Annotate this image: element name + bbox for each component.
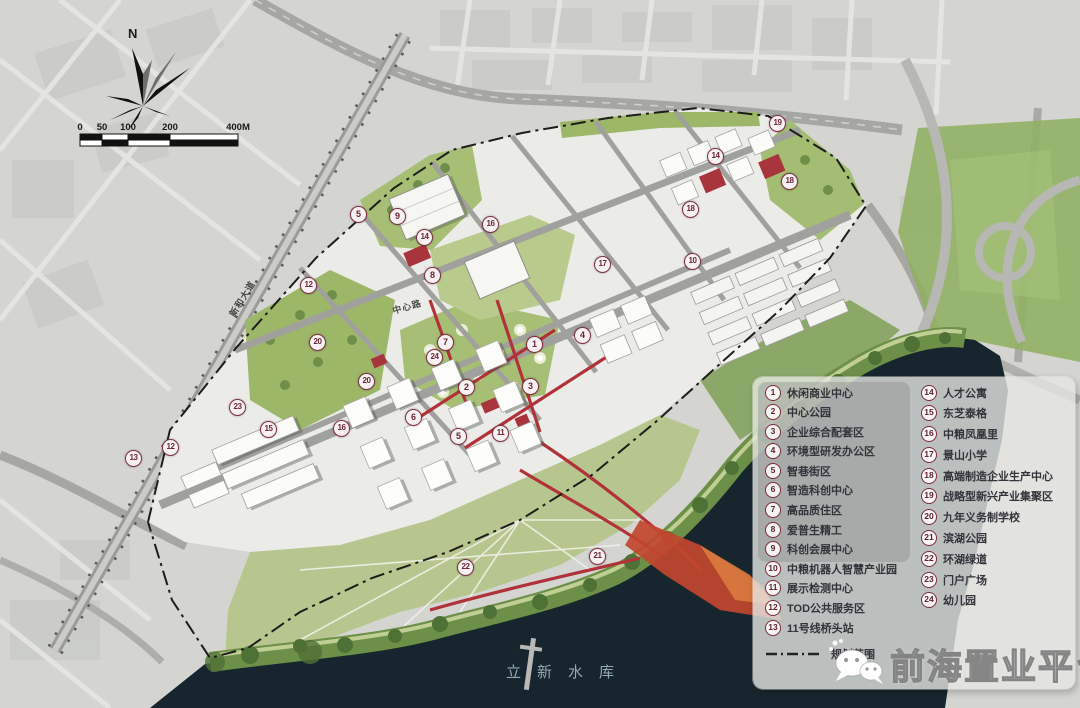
map-marker-5: 5 xyxy=(350,206,367,223)
legend-item-label: 中粮机器人智慧产业园 xyxy=(787,561,897,577)
legend-column-right: 14人才公寓15东芝泰格16中粮凤凰里17景山小学18高端制造企业生产中心19战… xyxy=(921,385,1073,661)
legend-item: 8爱普生精工 xyxy=(765,522,911,537)
map-marker-17: 17 xyxy=(594,256,611,273)
legend-item-label: 高端制造企业生产中心 xyxy=(943,468,1053,484)
watermark-text: 前海置业平台 xyxy=(890,639,1080,690)
legend-item-number: 10 xyxy=(765,561,781,577)
legend-item-number: 1 xyxy=(765,385,781,401)
legend-item: 20九年义务制学校 xyxy=(921,510,1073,525)
legend-item-number: 16 xyxy=(921,426,937,442)
legend-item: 1休闲商业中心 xyxy=(765,385,911,400)
legend-item-label: 展示检测中心 xyxy=(787,580,853,596)
map-marker-6: 6 xyxy=(405,409,422,426)
legend-item: 6智造科创中心 xyxy=(765,483,911,498)
legend-item-label: 幼儿园 xyxy=(943,592,976,608)
scale-tick: 400M xyxy=(226,122,250,133)
map-marker-18: 18 xyxy=(682,201,699,218)
legend-item: 23门户广场 xyxy=(921,572,1073,587)
legend-item-number: 22 xyxy=(921,551,937,567)
map-marker-20: 20 xyxy=(358,373,375,390)
legend-item: 2中心公园 xyxy=(765,405,911,420)
legend-item: 12TOD公共服务区 xyxy=(765,601,911,616)
legend-item-label: 环湖绿道 xyxy=(943,551,987,567)
masterplan-map: N 0 50 100 200 400M 新和大道 中心路 立新水库 591416… xyxy=(0,0,1080,708)
map-marker-15: 15 xyxy=(260,421,277,438)
legend-item-label: 中粮凤凰里 xyxy=(943,426,998,442)
legend-item: 4环境型研发办公区 xyxy=(765,444,911,459)
map-marker-1: 1 xyxy=(526,336,543,353)
legend-item-number: 3 xyxy=(765,424,781,440)
legend-item: 9科创会展中心 xyxy=(765,542,911,557)
legend-item-label: 11号线桥头站 xyxy=(787,620,854,636)
legend-item-number: 20 xyxy=(921,509,937,525)
map-marker-13: 13 xyxy=(125,450,142,467)
legend-item-label: 高品质住区 xyxy=(787,502,842,518)
legend-item: 10中粮机器人智慧产业园 xyxy=(765,561,911,576)
legend-item-number: 18 xyxy=(921,468,937,484)
legend-item-number: 4 xyxy=(765,443,781,459)
legend-column-left: 1休闲商业中心2中心公园3企业综合配套区4环境型研发办公区5智巷街区6智造科创中… xyxy=(765,385,911,661)
scale-bar: 0 50 100 200 400M xyxy=(76,120,256,154)
legend-item-number: 17 xyxy=(921,447,937,463)
legend-item-number: 8 xyxy=(765,522,781,538)
map-marker-23: 23 xyxy=(229,399,246,416)
legend-item: 15东芝泰格 xyxy=(921,406,1073,421)
legend-item-label: 休闲商业中心 xyxy=(787,385,853,401)
map-marker-11: 11 xyxy=(492,425,509,442)
legend-item-label: 门户广场 xyxy=(943,572,987,588)
legend-item: 11展示检测中心 xyxy=(765,581,911,596)
wechat-icon xyxy=(828,638,886,690)
legend-item-label: 人才公寓 xyxy=(943,385,987,401)
legend-item-number: 13 xyxy=(765,620,781,636)
reservoir-label: 立新水库 xyxy=(506,661,630,682)
legend-item-number: 7 xyxy=(765,502,781,518)
scale-tick: 100 xyxy=(120,122,136,133)
north-label: N xyxy=(128,26,137,41)
legend-item-number: 5 xyxy=(765,463,781,479)
scale-tick: 0 xyxy=(77,122,82,133)
legend-item: 19战略型新兴产业集聚区 xyxy=(921,489,1073,504)
map-marker-12: 12 xyxy=(162,439,179,456)
legend-item: 14人才公寓 xyxy=(921,385,1073,400)
legend-item: 24幼儿园 xyxy=(921,593,1073,608)
legend-item: 5智巷街区 xyxy=(765,463,911,478)
map-marker-24: 24 xyxy=(426,349,443,366)
legend-item-label: 环境型研发办公区 xyxy=(787,443,875,459)
map-marker-20: 20 xyxy=(309,334,326,351)
map-marker-10: 10 xyxy=(684,253,701,270)
map-marker-19: 19 xyxy=(769,115,786,132)
legend-item-label: 智造科创中心 xyxy=(787,482,853,498)
map-marker-14: 14 xyxy=(707,148,724,165)
legend-item-number: 24 xyxy=(921,592,937,608)
map-marker-9: 9 xyxy=(389,208,406,225)
legend-item-number: 19 xyxy=(921,488,937,504)
legend-item-label: 景山小学 xyxy=(943,447,987,463)
map-marker-18: 18 xyxy=(781,173,798,190)
compass-rose xyxy=(98,26,193,131)
legend-item-number: 21 xyxy=(921,530,937,546)
legend-item-number: 6 xyxy=(765,482,781,498)
map-marker-22: 22 xyxy=(457,559,474,576)
legend-item: 7高品质住区 xyxy=(765,503,911,518)
legend-item-number: 12 xyxy=(765,600,781,616)
legend-item-number: 11 xyxy=(765,580,781,596)
legend-item-label: 科创会展中心 xyxy=(787,541,853,557)
watermark: 前海置业平台 xyxy=(828,638,1080,690)
legend-item: 1311号线桥头站 xyxy=(765,620,911,635)
legend-item-label: 企业综合配套区 xyxy=(787,424,864,440)
legend-item-label: 东芝泰格 xyxy=(943,405,987,421)
legend-item-label: TOD公共服务区 xyxy=(787,600,865,616)
legend-item-number: 15 xyxy=(921,405,937,421)
map-marker-16: 16 xyxy=(333,420,350,437)
legend-item-number: 9 xyxy=(765,541,781,557)
map-marker-7: 7 xyxy=(437,334,454,351)
boundary-line-sample xyxy=(765,650,823,658)
legend-item: 3企业综合配套区 xyxy=(765,424,911,439)
legend-item-label: 智巷街区 xyxy=(787,463,831,479)
map-marker-21: 21 xyxy=(589,548,606,565)
legend-item: 22环湖绿道 xyxy=(921,551,1073,566)
map-marker-2: 2 xyxy=(458,379,475,396)
map-marker-8: 8 xyxy=(424,267,441,284)
legend-item: 17景山小学 xyxy=(921,447,1073,462)
legend-item: 21滨湖公园 xyxy=(921,531,1073,546)
map-marker-12: 12 xyxy=(300,277,317,294)
map-marker-16: 16 xyxy=(482,216,499,233)
legend-item-label: 爱普生精工 xyxy=(787,522,842,538)
map-marker-3: 3 xyxy=(522,378,539,395)
legend-item-number: 14 xyxy=(921,385,937,401)
legend-item-number: 23 xyxy=(921,572,937,588)
map-marker-14: 14 xyxy=(416,229,433,246)
map-marker-4: 4 xyxy=(574,327,591,344)
map-marker-5: 5 xyxy=(450,428,467,445)
legend-item-label: 滨湖公园 xyxy=(943,530,987,546)
legend-item-number: 2 xyxy=(765,404,781,420)
legend-item-label: 九年义务制学校 xyxy=(943,509,1020,525)
scale-tick: 50 xyxy=(97,122,108,133)
scale-tick: 200 xyxy=(162,122,178,133)
legend-item: 18高端制造企业生产中心 xyxy=(921,468,1073,483)
legend-item-label: 战略型新兴产业集聚区 xyxy=(943,488,1053,504)
legend-item: 16中粮凤凰里 xyxy=(921,427,1073,442)
legend-item-label: 中心公园 xyxy=(787,404,831,420)
